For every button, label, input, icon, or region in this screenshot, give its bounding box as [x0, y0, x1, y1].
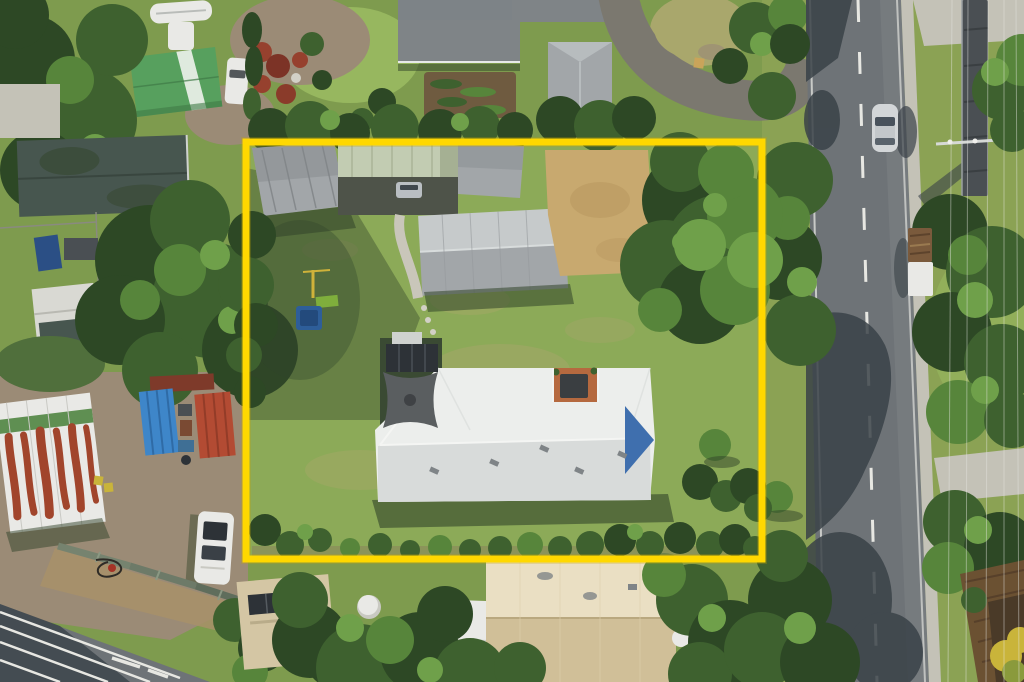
green-roof-shed: [130, 47, 223, 117]
aerial-photo: [0, 0, 1024, 682]
gray-shed: [252, 142, 346, 216]
carport-building: [338, 143, 458, 215]
red-item: [108, 564, 116, 572]
hedge: [242, 12, 263, 120]
flat-gray-roof: [512, 0, 612, 22]
dark-red-container: [150, 373, 215, 392]
white-van: [168, 22, 194, 50]
car-on-road: [872, 104, 917, 158]
garage-building: [418, 208, 568, 296]
water-tank: [357, 595, 381, 619]
outdoor-table: [64, 238, 98, 260]
aerial-scene: [0, 0, 1024, 682]
workshop-shed: [0, 393, 106, 534]
concrete-apron: [0, 84, 60, 138]
blue-shed: [139, 388, 180, 455]
courtyard: [553, 368, 599, 403]
top-center-house: [398, 0, 520, 71]
caravan: [185, 510, 234, 587]
blue-tarp: [34, 234, 62, 271]
pergola: [383, 332, 438, 428]
red-container: [194, 392, 235, 459]
